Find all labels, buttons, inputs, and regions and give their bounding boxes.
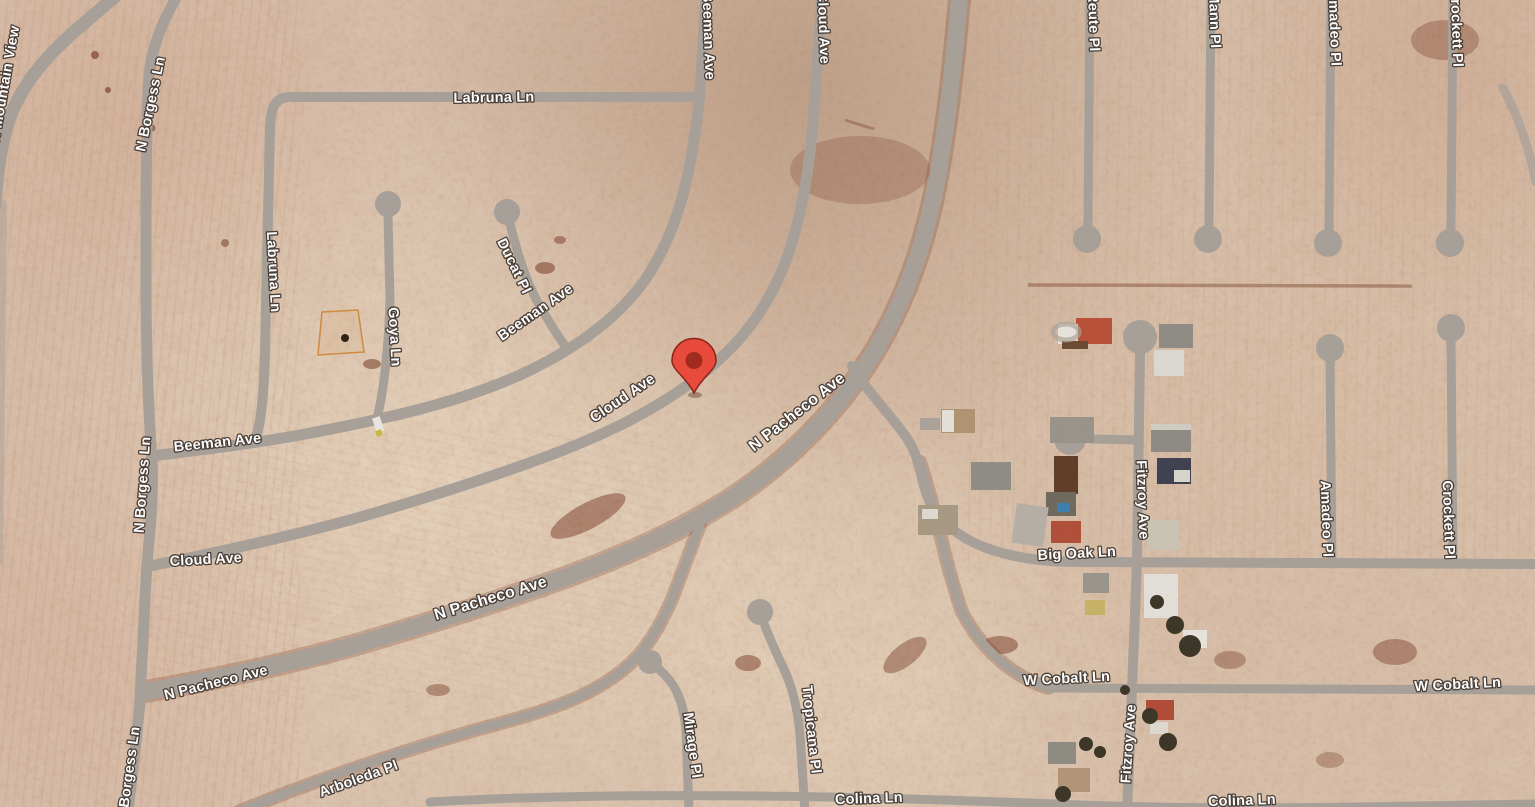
road-label-goya-ln: Goya Ln (384, 307, 403, 367)
satellite-map[interactable]: N Mountain ViewN Borgess LnLabruna LnLab… (0, 0, 1535, 807)
road-label-colina-ln-2: Colina Ln (1208, 792, 1276, 807)
road-label-reute-pl: Reute Pl (1084, 0, 1102, 52)
road-label-amadeo-pl-top: Amadeo Pl (1325, 0, 1344, 66)
road-label-amadeo-pl-mid: Amadeo Pl (1317, 480, 1336, 557)
road-label-labruna-ln-h: Labruna Ln (453, 89, 534, 106)
road-label-mann-pl: Mann Pl (1205, 0, 1223, 49)
road-label-cloud-ave-top: Cloud Ave (814, 0, 833, 64)
road-label-crockett-pl-top: Crockett Pl (1447, 0, 1466, 67)
road-label-fitzroy-ave-mid: Fitzroy Ave (1133, 460, 1152, 540)
pin-shadow (688, 392, 702, 398)
pin-inner-circle (686, 352, 703, 369)
road-label-beeman-ave-top: Beeman Ave (698, 0, 717, 80)
road-label-crockett-pl-mid: Crockett Pl (1439, 480, 1458, 559)
road-label-colina-ln-1: Colina Ln (835, 790, 903, 807)
